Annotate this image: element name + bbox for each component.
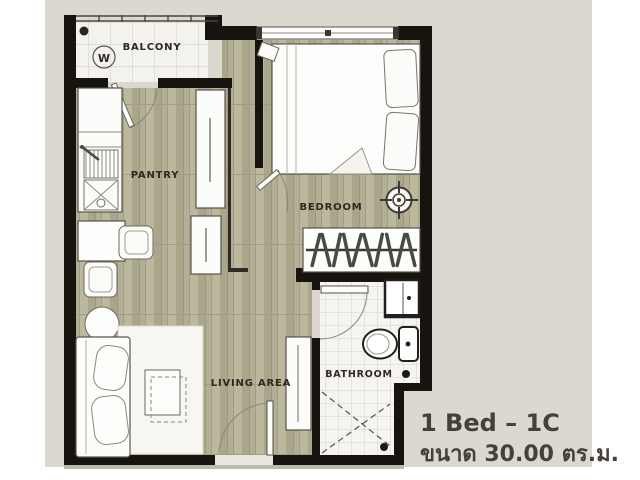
toilet: [363, 327, 418, 361]
bed: [272, 44, 420, 174]
dining-table: [78, 221, 125, 261]
pantry-label: PANTRY: [131, 170, 180, 181]
dining-chair: [84, 262, 117, 297]
sofa-cushion: [90, 394, 130, 446]
living-area-label: LIVING AREA: [211, 378, 291, 389]
bedroom-window: [257, 27, 398, 39]
tall-cabinets: [191, 90, 225, 274]
bathroom-label: BATHROOM: [325, 369, 393, 380]
pillow: [384, 49, 419, 108]
wall-shadow: [64, 465, 404, 469]
washer-label: W: [98, 52, 110, 65]
balcony-railing: [76, 15, 218, 22]
sofa-cushion: [92, 344, 130, 392]
sofa: [76, 337, 130, 457]
balcony-drain-icon: [80, 27, 89, 36]
entrance-door-leaf: [267, 401, 273, 455]
shower-drain-icon: [380, 443, 388, 451]
pillow: [383, 112, 419, 171]
drainboard: [84, 150, 118, 178]
bathroom-door-leaf: [321, 286, 368, 293]
kitchen-counter: [78, 88, 122, 212]
floor-plan-page: BALCONY W PANTRY BEDROOM LIVING AREA BAT…: [0, 0, 640, 480]
floor-drain-icon: [402, 370, 410, 378]
kitchen-sink: [84, 180, 118, 210]
coffee-table: [145, 370, 186, 422]
caption: 1 Bed – 1C ขนาด 30.00 ตร.ม.: [420, 409, 619, 467]
floor-plan-drawing: BALCONY W PANTRY BEDROOM LIVING AREA BAT…: [0, 0, 640, 480]
side-table: [85, 307, 119, 341]
unit-size-text: ขนาด 30.00 ตร.ม.: [420, 442, 619, 467]
bathroom-sink: [385, 280, 419, 318]
dining-chair: [119, 226, 153, 259]
wardrobe: [303, 228, 420, 272]
balcony-label: BALCONY: [123, 42, 182, 53]
bedroom-label: BEDROOM: [299, 202, 362, 213]
unit-type-text: 1 Bed – 1C: [420, 409, 560, 437]
